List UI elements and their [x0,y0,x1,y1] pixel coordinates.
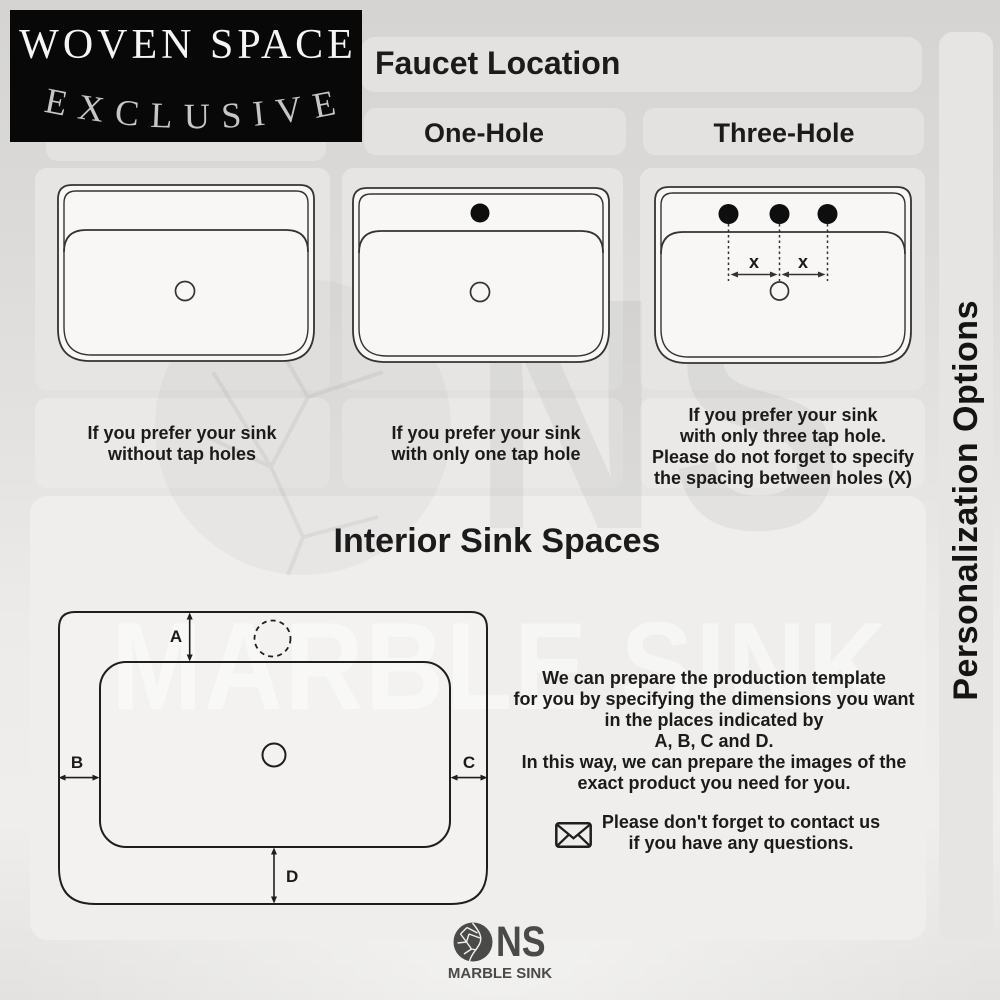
svg-text:x: x [749,252,759,272]
svg-text:B: B [71,753,83,772]
svg-text:x: x [798,252,808,272]
svg-text:C: C [463,753,475,772]
svg-text:D: D [286,867,298,886]
svg-text:A: A [170,627,182,646]
svg-text:EXCLUSIVE: EXCLUSIVE [42,80,351,136]
